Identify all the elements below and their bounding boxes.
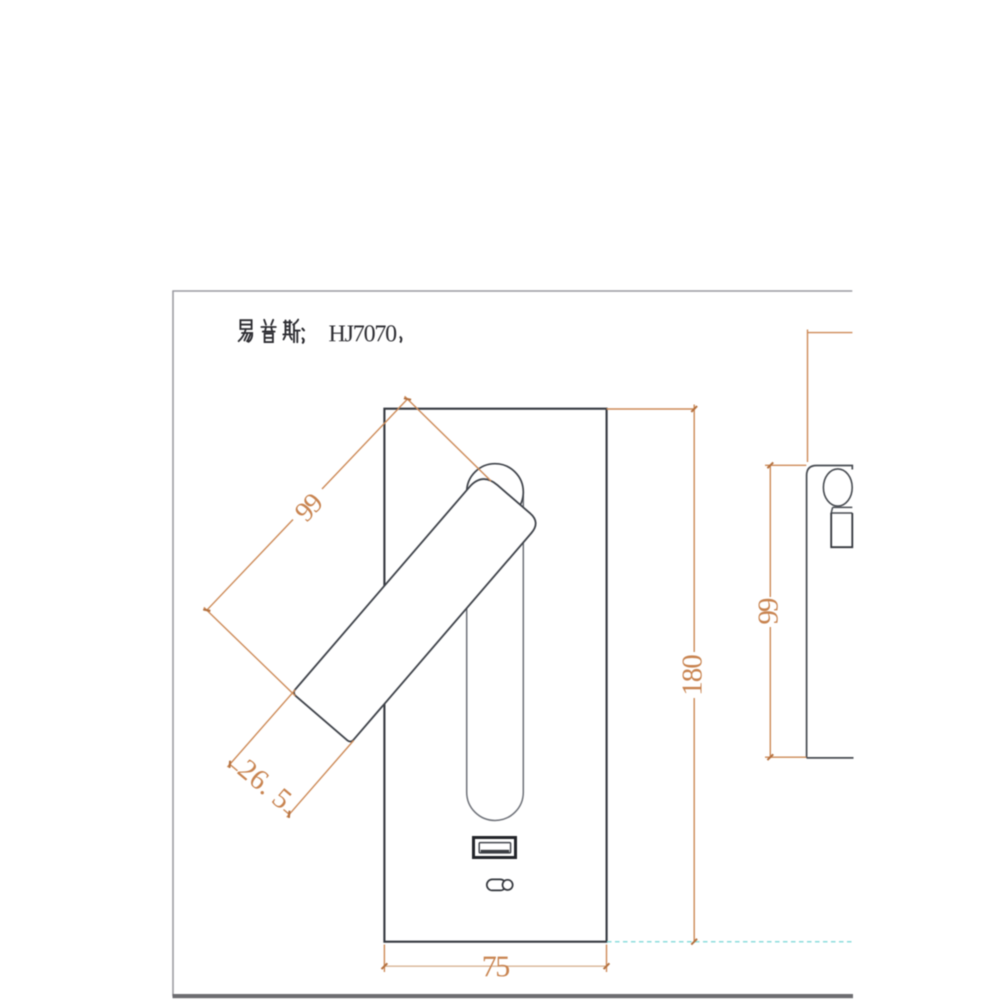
svg-text:75: 75 — [482, 950, 510, 983]
svg-text:99: 99 — [753, 598, 785, 625]
svg-text:99: 99 — [289, 488, 329, 528]
svg-text:26. 5: 26. 5 — [232, 753, 298, 816]
svg-text:HJ7070: HJ7070 — [328, 321, 397, 347]
svg-text:180: 180 — [677, 655, 709, 696]
